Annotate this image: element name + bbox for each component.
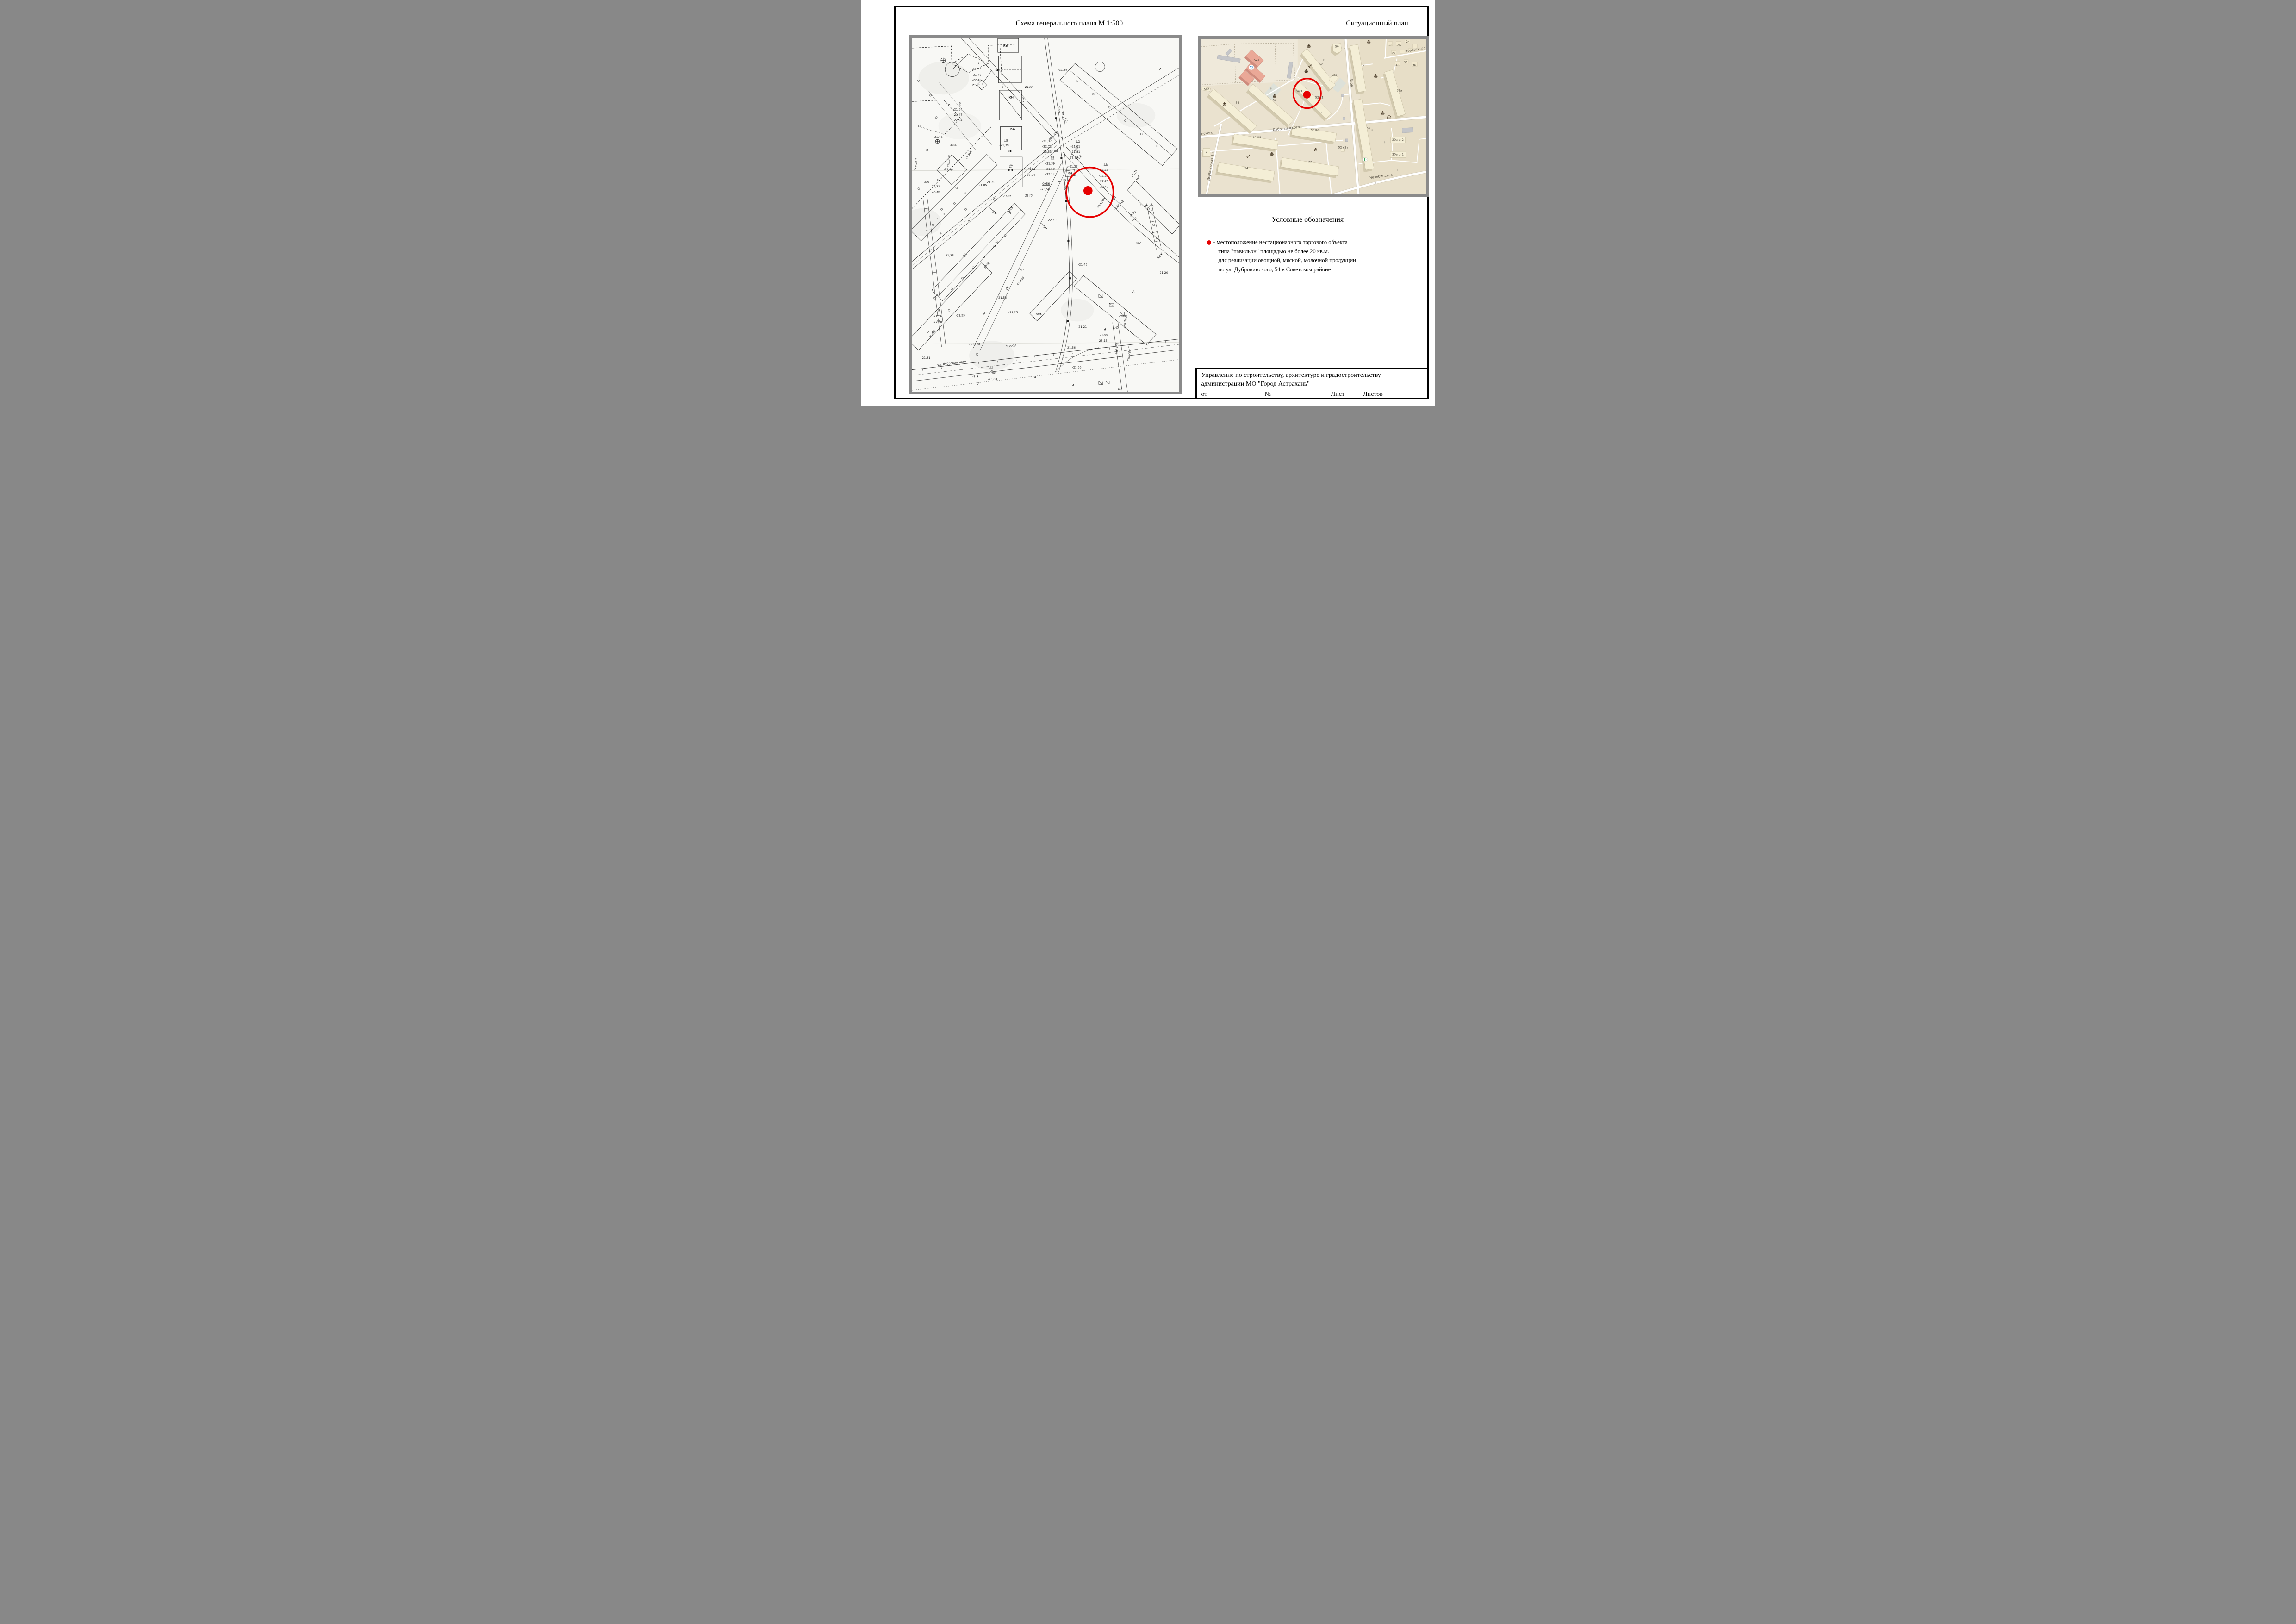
genplan-label: -21,50 [986, 181, 995, 184]
genplan-label: -23,53 [1042, 150, 1051, 154]
building-label: 20а ст1 [1392, 153, 1403, 156]
fuel-station-icon [1362, 158, 1367, 162]
genplan-label: КН [1008, 150, 1012, 153]
genplan-label: -21,34 [953, 108, 962, 111]
genplan-label: -21,20 [1158, 271, 1168, 275]
from-label: от [1201, 390, 1207, 399]
genplan-map: КНМКНКАКННН214021222139214021,897-21,33-… [909, 35, 1182, 394]
genplan-label: -21,48 [972, 73, 981, 76]
genplan-label: -21,27 [1068, 165, 1077, 169]
genplan-label: КА [1010, 127, 1015, 131]
genplan-label: зас. [1117, 388, 1123, 391]
genplan-label: зам. [950, 144, 956, 147]
genplan-label: 4 [1104, 328, 1106, 331]
building-label: 56 [1235, 101, 1239, 105]
genplan-label: -21,33 [972, 68, 981, 71]
building-label: 54/1 [1296, 90, 1302, 93]
genplan-label: -23,14 [1045, 173, 1054, 176]
genplan-label: -22,72 [1042, 145, 1051, 148]
genplan-label: КН [1008, 96, 1013, 99]
building-label: 58а [1204, 87, 1209, 91]
date-blank-field [1210, 392, 1262, 399]
genplan-label: заб [924, 180, 929, 184]
genplan-label: -22,48 [972, 79, 981, 82]
genplan-label: -21,66 [933, 315, 942, 318]
sheet-label: Лист [1331, 390, 1344, 399]
genplan-label: -20,54 [1025, 174, 1034, 177]
genplan-label: А [1132, 290, 1134, 294]
genplan-label: -21,24 [1099, 174, 1108, 177]
building-label: 2 [1205, 151, 1207, 154]
building-label: 50 [1335, 45, 1338, 48]
building-label: 57 [1360, 65, 1364, 68]
genplan-label: -21,47 [953, 113, 962, 117]
genplan-label: МН [1067, 172, 1072, 175]
genplan-label: М [995, 69, 998, 72]
genplan-label: КН [1003, 45, 1008, 48]
genplan-label: 23,15 [1099, 339, 1107, 343]
genplan-label: -21,35 [944, 254, 953, 257]
nto-marker-dot [1303, 91, 1311, 98]
genplan-label: 13 [1076, 139, 1079, 143]
legend-line: типа "павильон" площадью не более 20 кв.… [1206, 247, 1419, 256]
genplan-label: -21,56 [1066, 346, 1075, 350]
number-blank-field [1274, 392, 1328, 399]
genplan-label: -21,25 [1008, 311, 1018, 314]
building-label: 52а [1331, 74, 1337, 77]
sitplan-title: Ситуационный план [1273, 19, 1435, 28]
genplan-label: 18 [1004, 139, 1008, 142]
org-name-line2: администрации МО "Город Астрахань" [1201, 380, 1422, 388]
genplan-label: -23,08 [988, 378, 997, 381]
genplan-label: зас. [1136, 242, 1142, 245]
sheets-label: Листов [1363, 390, 1383, 399]
building-label: 29 [1392, 52, 1395, 55]
genplan-label: -22,50 [1047, 219, 1056, 222]
genplan-label: -21,31 [930, 185, 940, 188]
genplan-label: 2122 [1025, 86, 1032, 89]
legend-title: Условные обозначения [1227, 216, 1389, 224]
genplan-label: -21,21 [1077, 325, 1086, 329]
sitplan-drawing: ДубровинскогонскогоДербентская 2-яБэраЧе… [1201, 39, 1426, 194]
building-label: 59 [1367, 127, 1370, 130]
genplan-label: -22,94 [953, 119, 962, 122]
genplan-label: -21,55 [955, 314, 964, 317]
genplan-label: эл. [1113, 326, 1117, 330]
sheets-blank-field [1386, 392, 1401, 399]
genplan-label: -21,41 [943, 168, 952, 171]
genplan-label: -21,55 [997, 296, 1006, 300]
genplan-label: -21,31 [921, 356, 930, 360]
genplan-label: -7,9 [972, 375, 978, 378]
genplan-label: 0714 [1027, 168, 1035, 171]
genplan-label: НН [1008, 169, 1013, 172]
genplan-label: А [1101, 382, 1103, 386]
genplan-label: -22,80 [933, 321, 942, 324]
genplan-label: -21,43 [987, 371, 996, 375]
building-label: 54 к1 [1253, 136, 1261, 139]
genplan-label: -21,39 [999, 144, 1008, 147]
genplan-label: -22,47 [1099, 185, 1108, 188]
building-label: 52 [1319, 63, 1323, 66]
nto-marker-dot [1083, 186, 1093, 195]
legend: - местоположение нестационарного торгово… [1206, 238, 1419, 274]
genplan-label: А [1008, 212, 1011, 215]
genplan-label: 158 [1052, 150, 1058, 153]
building-label: 59а [1396, 89, 1402, 92]
genplan-label: -21,13 [1099, 169, 1108, 172]
genplan-label: -21,29 [1058, 68, 1067, 71]
genplan-label: А [1159, 68, 1161, 71]
building-label: 36 [1412, 64, 1416, 67]
genplan-label: -21,39 [1045, 162, 1054, 165]
building-label: 24 [1406, 40, 1409, 44]
title-block: Управление по строительству, архитектуре… [1195, 368, 1428, 399]
genplan-label: 7 [977, 62, 979, 65]
building-label: 52 к2а [1338, 146, 1348, 149]
genplan-label: зам. [1035, 313, 1042, 316]
building-label: 28 [1388, 44, 1392, 47]
org-name-line1: Управление по строительству, архитектуре… [1201, 371, 1422, 380]
legend-marker-dot [1207, 240, 1211, 245]
legend-line: по ул. Дубровинского, 54 в Советском рай… [1206, 265, 1419, 275]
genplan-label: 69 [1051, 156, 1054, 160]
genplan-label: -22,36 [930, 190, 940, 194]
number-label: № [1264, 390, 1270, 399]
building-label: 52 к2 [1310, 129, 1319, 132]
sheet-blank-field [1347, 392, 1360, 399]
genplan-label: 9 [938, 309, 940, 312]
genplan-label: -21,18 [1144, 205, 1153, 208]
genplan-label: 2139 [1003, 195, 1010, 198]
genplan-label: 2140 [1025, 194, 1032, 198]
document-page: Схема генерального плана М 1:500 Ситуаци… [861, 0, 1435, 406]
genplan-label: -21,41 [933, 136, 942, 139]
genplan-label: -21,55 [1098, 333, 1108, 337]
genplan-label: -0,7 [1064, 118, 1068, 124]
store-cart-icon [1249, 65, 1254, 70]
genplan-label: -21,50 [1045, 168, 1054, 171]
genplan-label: А [1033, 376, 1036, 379]
genplan-label: 14 [1103, 162, 1107, 166]
building-label: 20а ст2 [1392, 138, 1403, 142]
genplan-label: 5 [936, 179, 938, 182]
building-label: 54а [1254, 59, 1259, 62]
building-label: 52 к1 [1315, 96, 1323, 99]
genplan-label: 0956 [1042, 182, 1050, 186]
genplan-label: -21,45 [1078, 263, 1087, 266]
building-label: 26 [1397, 44, 1400, 47]
genplan-label: 2140 [972, 84, 979, 87]
street-label: Бэра [1349, 78, 1354, 87]
genplan-drawing: КНМКНКАКННН214021222139214021,897-21,33-… [912, 38, 1179, 392]
genplan-label: 6 [958, 102, 960, 106]
building-label: 38 [1404, 61, 1407, 64]
genplan-label: -20,56 [1040, 188, 1050, 191]
genplan-title: Схема генерального плана М 1:500 [954, 19, 1185, 28]
genplan-label: 21,26 [1063, 179, 1071, 182]
genplan-label: -22,23 [1099, 180, 1108, 183]
building-label: 40 [1395, 64, 1399, 67]
building-label: 24 [1244, 167, 1248, 170]
genplan-label: А [1071, 384, 1074, 387]
legend-line: - местоположение нестационарного торгово… [1206, 238, 1419, 247]
genplan-label: -21,55 [1072, 366, 1081, 369]
sitplan-map: ДубровинскогонскогоДербентская 2-яБэраЧе… [1198, 36, 1429, 197]
genplan-label: А [977, 382, 979, 386]
building-label: 54 [1273, 99, 1276, 102]
genplan-label: 11 [989, 366, 993, 369]
legend-line: для реализации овощной, мясной, молочной… [1206, 256, 1419, 265]
building-label: 22 [1308, 161, 1312, 164]
genplan-label: А [1139, 204, 1141, 207]
